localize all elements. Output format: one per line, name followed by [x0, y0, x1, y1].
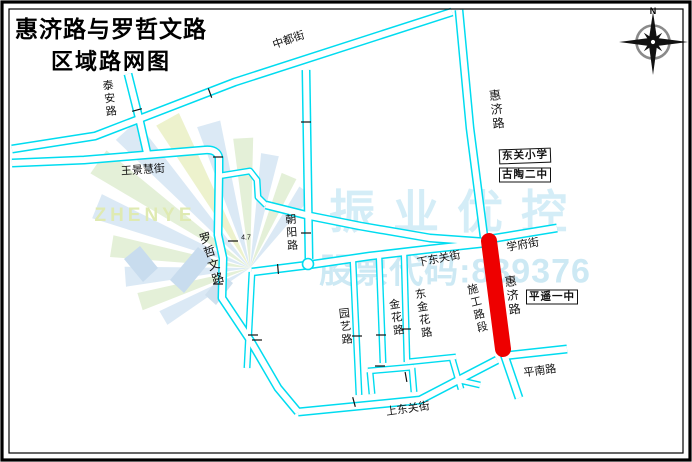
compass-rose — [619, 12, 688, 75]
map-title-line1: 惠济路与罗哲文路 — [12, 10, 210, 44]
map-title: 惠济路与罗哲文路 区域路网图 — [12, 10, 210, 76]
compass-north-label: N — [650, 6, 657, 16]
road-network-map: ZHENYE 振业优控 股票代码:839376 — [0, 0, 692, 462]
roundabout — [303, 259, 314, 270]
construction-segment — [489, 241, 503, 349]
road-label-chaoyang: 朝阳路 — [283, 213, 297, 253]
poi-box-gutao-no2: 古陶二中 — [499, 168, 551, 183]
poi-box-pingyao-no1: 平遥一中 — [526, 290, 578, 305]
poi-box-dongguan-primary: 东关小学 — [499, 148, 551, 165]
width-annotation: 4.7 — [241, 234, 251, 241]
width-tick-marks — [132, 88, 411, 407]
map-title-line2: 区域路网图 — [12, 44, 210, 76]
